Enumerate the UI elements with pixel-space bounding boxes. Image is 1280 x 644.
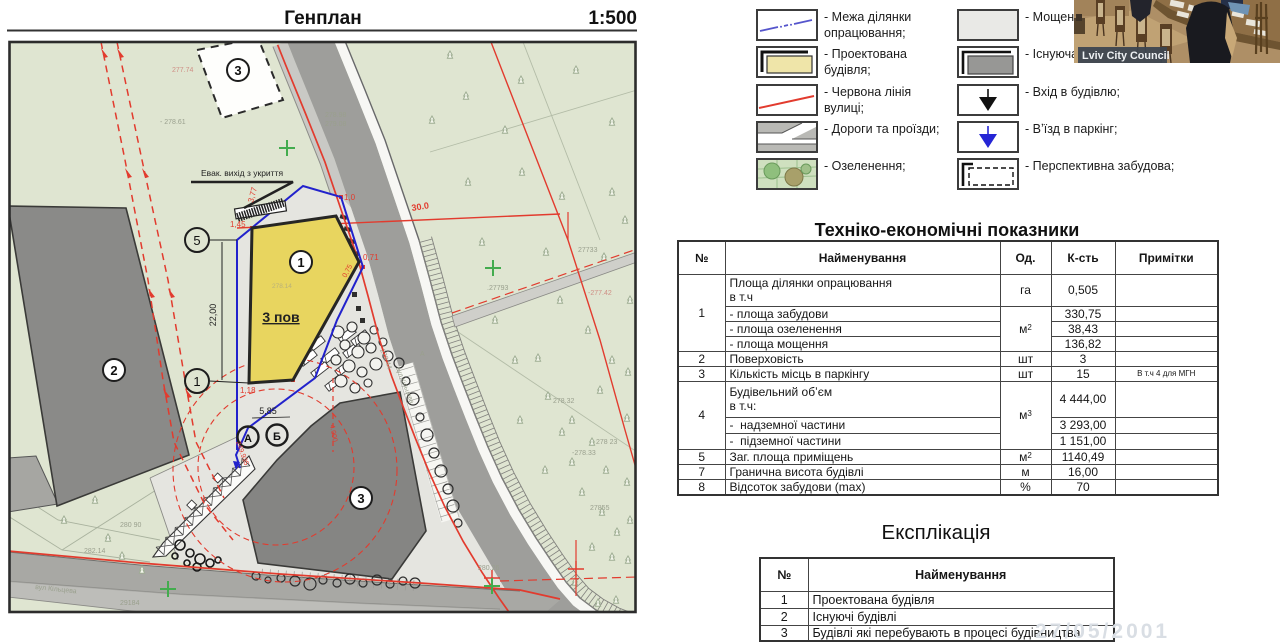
svg-text:277.74: 277.74 — [172, 67, 194, 74]
svg-text:Б: Б — [273, 431, 281, 443]
svg-text:Lviv City Council: Lviv City Council — [1082, 50, 1170, 62]
svg-text:Евак. вихід з укриття: Евак. вихід з укриття — [201, 168, 283, 178]
svg-text:278.14: 278.14 — [272, 283, 292, 290]
svg-text:29184: 29184 — [120, 600, 140, 607]
svg-text:А: А — [244, 433, 252, 445]
svg-text:27855: 27855 — [590, 505, 610, 512]
svg-text:3 пов: 3 пов — [262, 309, 300, 325]
svg-text:5: 5 — [193, 233, 200, 248]
svg-text:2: 2 — [110, 363, 117, 378]
svg-text:22,00: 22,00 — [208, 304, 218, 327]
svg-text:278.98: 278.98 — [325, 112, 347, 119]
svg-text:Генплан: Генплан — [284, 8, 361, 29]
svg-text:-278.33: -278.33 — [572, 450, 596, 457]
svg-text:5,85: 5,85 — [259, 406, 277, 416]
svg-text:278.32: 278.32 — [553, 398, 575, 405]
svg-text:1: 1 — [297, 255, 304, 270]
svg-text:279.08: 279.08 — [325, 121, 347, 128]
svg-text:1:500: 1:500 — [588, 8, 637, 29]
svg-text:3: 3 — [234, 63, 241, 78]
svg-text:27733: 27733 — [578, 247, 598, 254]
svg-text:280 90: 280 90 — [120, 522, 142, 529]
svg-text:280.26: 280.26 — [478, 565, 500, 572]
svg-text:278 23: 278 23 — [596, 439, 618, 446]
svg-text:- 278.61: - 278.61 — [160, 119, 186, 126]
svg-text:1,18: 1,18 — [240, 386, 256, 395]
svg-text:1,45: 1,45 — [230, 220, 246, 229]
svg-text:.27793: .27793 — [487, 285, 509, 292]
svg-text:А: А — [420, 351, 425, 358]
svg-text:-277.42: -277.42 — [588, 290, 612, 297]
svg-text:1: 1 — [193, 374, 200, 389]
svg-text:1,0: 1,0 — [344, 193, 356, 202]
svg-text:282.14: 282.14 — [84, 548, 106, 555]
svg-text:3: 3 — [357, 491, 364, 506]
svg-text:0,71: 0,71 — [363, 253, 379, 262]
